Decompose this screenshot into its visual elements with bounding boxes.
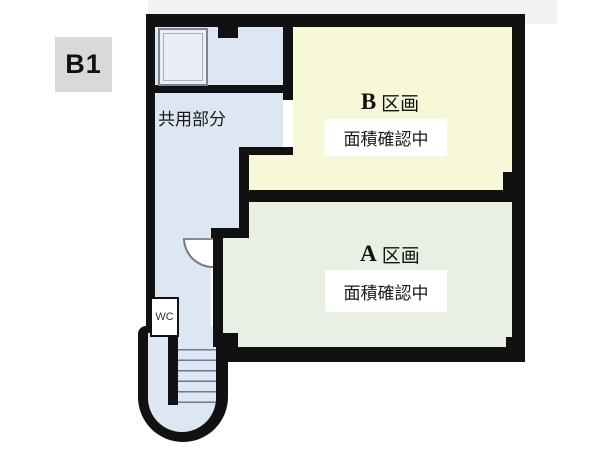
wall-corridor-lower (213, 238, 223, 347)
unit-b-area-extension (249, 155, 293, 190)
unit-b-title: B 区画 (325, 89, 455, 115)
corridor-upper (155, 147, 239, 228)
floor-badge: B1 (55, 37, 112, 92)
unit-a-letter: A (360, 241, 377, 267)
wall-corridor-upper (239, 147, 249, 228)
common-area-label: 共用部分 (158, 110, 250, 130)
floor-plan: B1 WC 共用部分 B 区画 面積確認中 A 区画 (0, 0, 600, 450)
unit-b-status-text: 面積確認中 (344, 125, 429, 150)
wall-corridor-step (211, 228, 249, 238)
wall-stub-corridor (221, 333, 238, 347)
unit-b-letter: B (361, 89, 376, 115)
wall-stub-unit-a (506, 337, 512, 347)
wall-elevator-door-stub (218, 27, 238, 38)
unit-a-type-label: 区画 (382, 241, 420, 268)
unit-a-title: A 区画 (325, 241, 455, 267)
wall-unit-divider (239, 190, 512, 202)
wall-bottom (216, 347, 525, 362)
unit-b-type-label: 区画 (381, 89, 419, 116)
wall-left (146, 14, 155, 333)
wall-top (146, 14, 525, 27)
wall-stub-unit-b (503, 172, 512, 190)
wc-room: WC (150, 297, 179, 337)
wc-label: WC (155, 311, 173, 323)
floor-badge-label: B1 (65, 49, 102, 80)
unit-a-status-text: 面積確認中 (344, 279, 429, 304)
wall-stair-side (168, 337, 178, 405)
elevator-shaft-inner (163, 33, 203, 81)
wall-right (512, 14, 525, 362)
unit-a-status-label: 面積確認中 (325, 270, 447, 312)
wall-lobby-divider (146, 85, 293, 93)
unit-b-status-label: 面積確認中 (325, 119, 447, 156)
elevator-shaft (158, 28, 208, 86)
unit-a-area-left (221, 238, 249, 347)
wall-lobby-unit-b (283, 27, 293, 100)
stairs (178, 340, 216, 406)
